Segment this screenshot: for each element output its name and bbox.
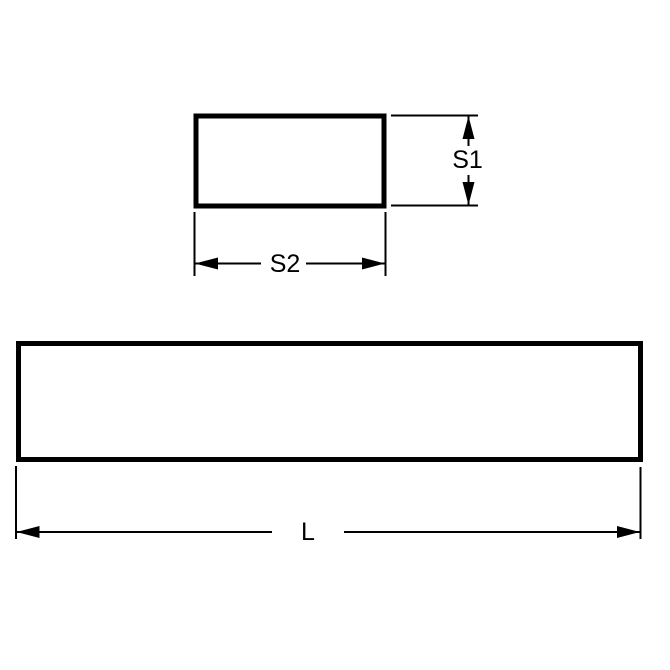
s1-dimension-label: S1 — [452, 146, 483, 174]
s2-dimension-label: S2 — [270, 250, 301, 278]
cross-section-rect — [196, 116, 384, 206]
side-view-rect — [19, 344, 641, 460]
l-dimension-label: L — [301, 518, 315, 546]
dimension-drawing-page: S1 S2 L — [0, 0, 670, 670]
drawing-background — [0, 0, 670, 670]
keystock-dimension-drawing: S1 S2 L — [0, 0, 670, 670]
